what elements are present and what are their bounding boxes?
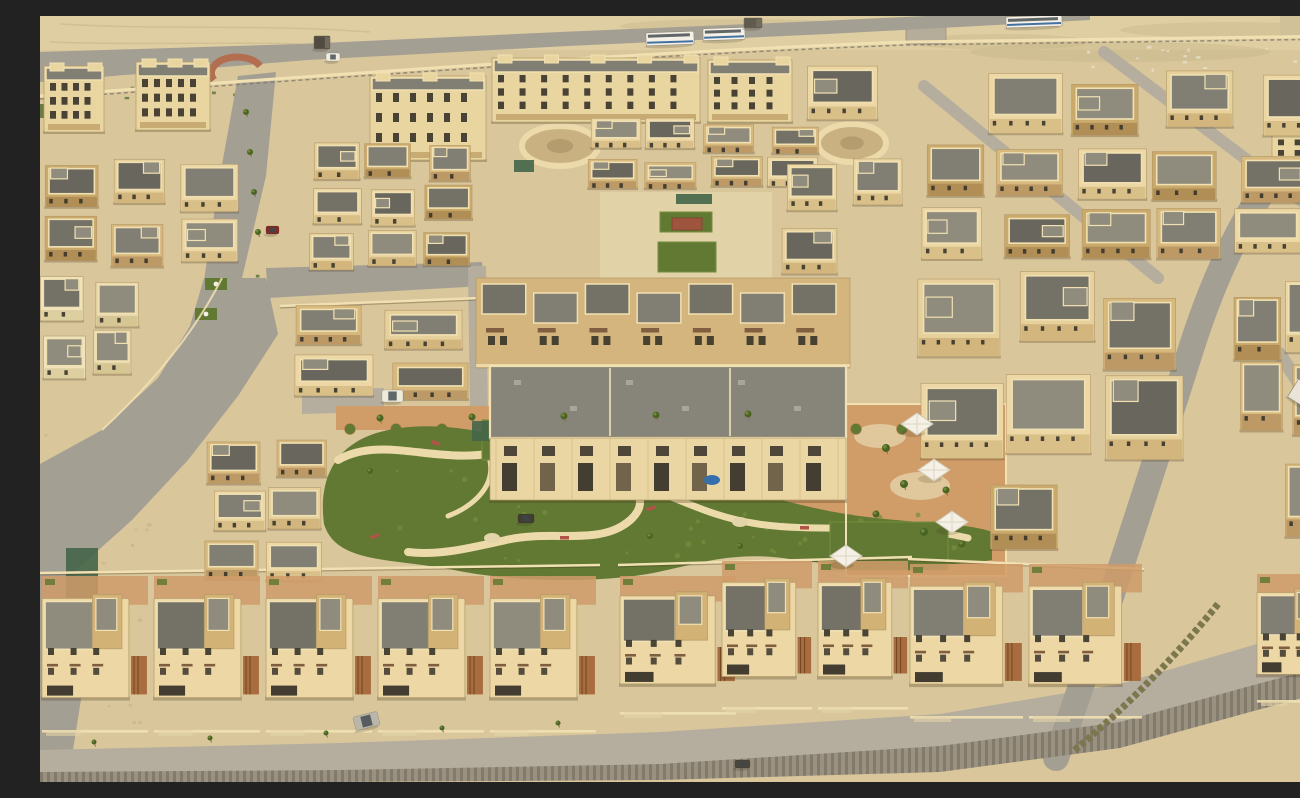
aerial-photograph-housing-development (40, 16, 1300, 782)
scene-canvas (40, 16, 1300, 782)
photo-warm-cast (40, 16, 1300, 782)
